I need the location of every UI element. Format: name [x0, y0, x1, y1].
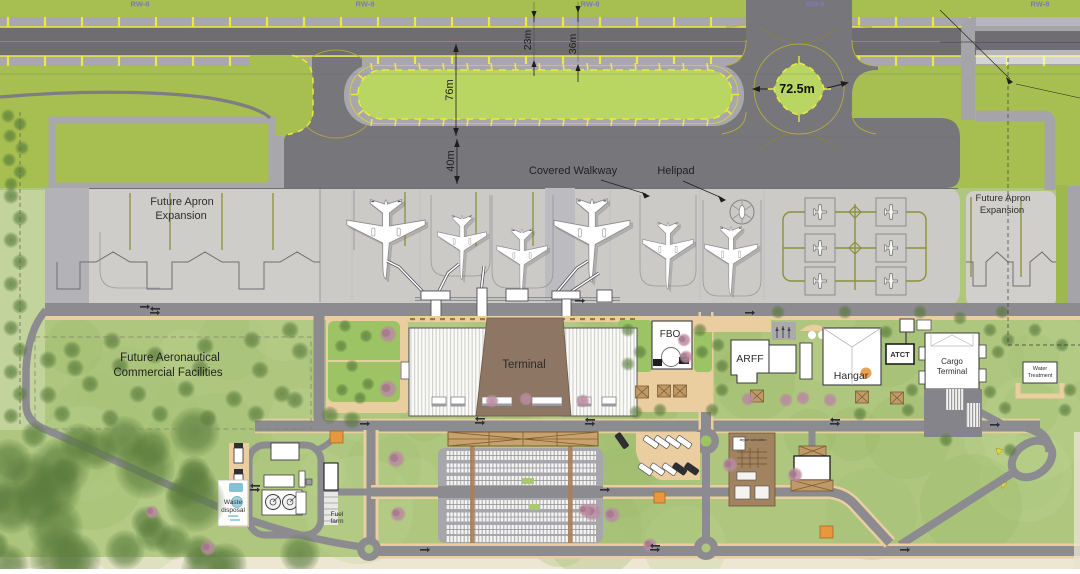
svg-text:Helipad: Helipad	[657, 165, 694, 177]
svg-text:Waste: Waste	[224, 499, 243, 506]
svg-text:36m: 36m	[567, 34, 579, 55]
svg-text:RW-8: RW-8	[1031, 0, 1050, 9]
svg-text:airport substation: airport substation	[740, 438, 767, 442]
svg-text:Fuel: Fuel	[331, 511, 344, 518]
svg-text:RW-8: RW-8	[356, 0, 375, 9]
svg-text:Terminal: Terminal	[937, 367, 967, 376]
svg-text:76m: 76m	[444, 79, 456, 100]
svg-text:Expansion: Expansion	[155, 210, 206, 222]
svg-text:Terminal: Terminal	[502, 359, 545, 371]
svg-text:Cargo: Cargo	[941, 357, 963, 366]
svg-text:23m: 23m	[522, 30, 534, 51]
svg-text:Future Aeronautical: Future Aeronautical	[120, 352, 220, 364]
svg-text:RW-8: RW-8	[581, 0, 600, 9]
svg-text:ATCT: ATCT	[890, 350, 910, 359]
svg-text:ARFF: ARFF	[736, 353, 763, 365]
svg-text:Expansion: Expansion	[980, 205, 1024, 216]
svg-text:Future Apron: Future Apron	[976, 193, 1031, 204]
svg-text:Water: Water	[1033, 366, 1048, 372]
svg-text:72.5m: 72.5m	[779, 82, 814, 96]
svg-text:RW-8: RW-8	[131, 0, 150, 9]
svg-text:Treatment: Treatment	[1028, 373, 1053, 379]
svg-text:RW-8: RW-8	[806, 0, 825, 9]
svg-text:Covered Walkway: Covered Walkway	[529, 165, 618, 177]
svg-text:Hangar: Hangar	[834, 370, 869, 382]
svg-text:Commercial Facilities: Commercial Facilities	[113, 367, 223, 379]
svg-text:disposal: disposal	[221, 507, 245, 514]
svg-text:Future Apron: Future Apron	[150, 196, 214, 208]
svg-text:40m: 40m	[445, 150, 457, 171]
svg-text:farm: farm	[331, 518, 344, 525]
